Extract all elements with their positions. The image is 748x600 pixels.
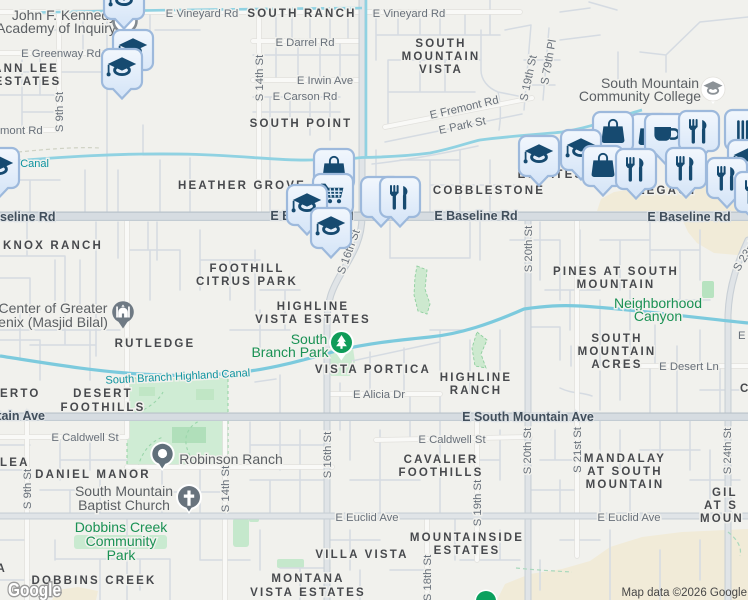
svg-text:S 20th St: S 20th St (522, 427, 534, 474)
svg-text:Robinson Ranch: Robinson Ranch (179, 451, 283, 467)
svg-text:AT SOUTH: AT SOUTH (587, 466, 663, 478)
svg-text:FOOTHILLS: FOOTHILLS (61, 402, 146, 414)
svg-text:Map data ©2026 Google: Map data ©2026 Google (622, 587, 747, 599)
svg-text:FOOTHILLS: FOOTHILLS (399, 467, 484, 479)
svg-text:MOUNTAIN: MOUNTAIN (402, 51, 481, 63)
svg-text:E Caldwell St: E Caldwell St (418, 434, 486, 446)
svg-text:S 18th St: S 18th St (422, 554, 434, 600)
svg-text:VISTA ESTATES: VISTA ESTATES (255, 314, 371, 326)
svg-text:S 14th St: S 14th St (254, 54, 266, 101)
svg-text:FOOTHILL: FOOTHILL (209, 263, 284, 275)
svg-text:ntain Ave: ntain Ave (0, 409, 45, 423)
svg-text:RANCH: RANCH (450, 385, 503, 397)
svg-text:KNOX RANCH: KNOX RANCH (3, 240, 103, 252)
svg-text:Academy of Inquiry: Academy of Inquiry (0, 20, 116, 36)
svg-text:Canyon: Canyon (634, 308, 682, 324)
svg-text:E Vineyard Rd: E Vineyard Rd (373, 8, 446, 20)
svg-text:VILLA VISTA: VILLA VISTA (315, 549, 408, 561)
svg-text:SOUTH: SOUTH (415, 38, 466, 50)
svg-text:ESTATES: ESTATES (434, 545, 501, 557)
svg-text:HIGHLINE: HIGHLINE (277, 301, 350, 313)
svg-text:E Desert Ln: E Desert Ln (659, 361, 719, 373)
svg-text:MOUNTAINSIDE: MOUNTAINSIDE (410, 532, 524, 544)
svg-text:E Vineyard Rd: E Vineyard Rd (166, 8, 239, 20)
svg-text:Community College: Community College (579, 88, 701, 104)
svg-text:ANN LEE: ANN LEE (0, 63, 59, 75)
svg-text:COBBLESTONE: COBBLESTONE (433, 185, 545, 197)
svg-text:Park: Park (107, 547, 137, 563)
svg-text:E Alicia Dr: E Alicia Dr (353, 389, 405, 401)
svg-text:C: C (740, 383, 748, 395)
svg-text:VISTA ESTATES: VISTA ESTATES (250, 587, 366, 599)
svg-text:S 16th St: S 16th St (322, 431, 334, 478)
svg-text:A: A (0, 563, 7, 575)
svg-text:E Carson Rd: E Carson Rd (273, 91, 338, 103)
svg-text:Branch Park: Branch Park (251, 344, 329, 360)
svg-text:LEA: LEA (0, 457, 30, 469)
svg-text:MOUNTAIN: MOUNTAIN (578, 346, 657, 358)
svg-text:SOUTH: SOUTH (591, 333, 642, 345)
svg-text:MOUNTAIN: MOUNTAIN (577, 279, 656, 291)
svg-text:AT S: AT S (704, 500, 738, 512)
svg-text:SOUTH POINT: SOUTH POINT (250, 118, 353, 130)
svg-text:S 9th St: S 9th St (54, 91, 66, 132)
svg-text:S 24th St: S 24th St (722, 427, 734, 474)
svg-text:E Ale: E Ale (738, 330, 748, 342)
svg-text:MONTANA: MONTANA (271, 573, 344, 585)
svg-text:RUTLEDGE: RUTLEDGE (115, 338, 196, 350)
svg-text:GIL: GIL (712, 487, 738, 499)
svg-text:S 9th St: S 9th St (22, 468, 34, 509)
svg-text:MOUNTAIN: MOUNTAIN (586, 479, 665, 491)
svg-text:PINES AT SOUTH: PINES AT SOUTH (553, 266, 679, 278)
svg-text:E Euclid Ave: E Euclid Ave (597, 512, 660, 524)
svg-text:ERTO: ERTO (0, 388, 41, 400)
svg-text:S 21st St: S 21st St (572, 426, 584, 473)
svg-text:Google: Google (8, 580, 61, 600)
svg-text:E Baseline Rd: E Baseline Rd (647, 210, 730, 224)
svg-text:E Baseline Rd: E Baseline Rd (434, 209, 517, 223)
svg-text:seline Rd: seline Rd (0, 210, 56, 224)
svg-text:MANDALAY: MANDALAY (584, 453, 666, 465)
svg-text:S 14th St: S 14th St (220, 465, 232, 512)
svg-text:E Euclid Ave: E Euclid Ave (335, 512, 398, 524)
svg-text:DESERT: DESERT (73, 388, 133, 400)
svg-text:ESTATES: ESTATES (0, 76, 61, 88)
svg-text:enix (Masjid Bilal): enix (Masjid Bilal) (0, 314, 108, 330)
svg-text:CAVALIER: CAVALIER (404, 454, 479, 466)
svg-text:Baptist Church: Baptist Church (78, 497, 170, 513)
svg-text:S 20th St: S 20th St (523, 225, 535, 272)
svg-text:SOUTH RANCH: SOUTH RANCH (247, 8, 356, 20)
svg-text:E Greenway Rd: E Greenway Rd (21, 48, 101, 60)
svg-text:MOUN: MOUN (700, 513, 744, 525)
svg-text:ACRES: ACRES (591, 359, 642, 371)
svg-text:E Darrel Rd: E Darrel Rd (275, 37, 334, 49)
svg-text:HIGHLINE: HIGHLINE (440, 372, 513, 384)
svg-text:VISTA PORTICA: VISTA PORTICA (315, 364, 431, 376)
svg-text:DANIEL MANOR: DANIEL MANOR (35, 469, 151, 481)
svg-text:CITRUS PARK: CITRUS PARK (196, 276, 298, 288)
svg-text:E South Mountain Ave: E South Mountain Ave (462, 410, 594, 424)
svg-text:E Irwin Ave: E Irwin Ave (297, 75, 353, 87)
svg-text:mont Rd: mont Rd (0, 125, 43, 137)
svg-text:E Caldwell St: E Caldwell St (51, 432, 119, 444)
svg-text:S 19th St: S 19th St (472, 479, 484, 526)
svg-text:VISTA: VISTA (419, 64, 463, 76)
